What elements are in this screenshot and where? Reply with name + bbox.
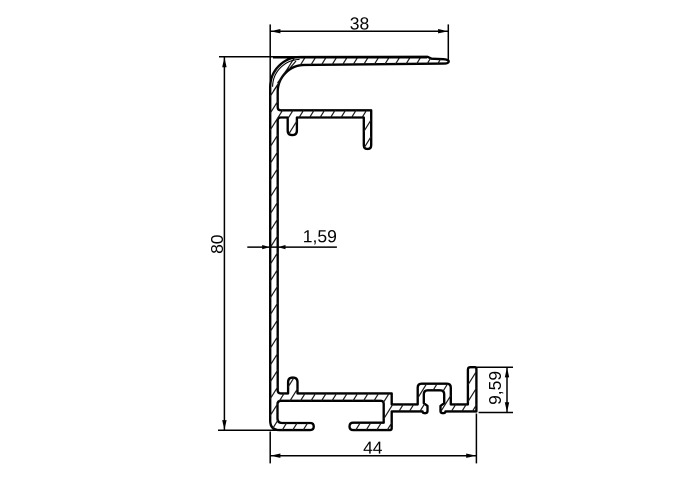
svg-text:80: 80 <box>207 234 227 254</box>
svg-text:9,59: 9,59 <box>485 371 505 405</box>
svg-text:44: 44 <box>363 438 383 458</box>
svg-text:1,59: 1,59 <box>303 226 337 246</box>
svg-text:38: 38 <box>350 13 369 33</box>
